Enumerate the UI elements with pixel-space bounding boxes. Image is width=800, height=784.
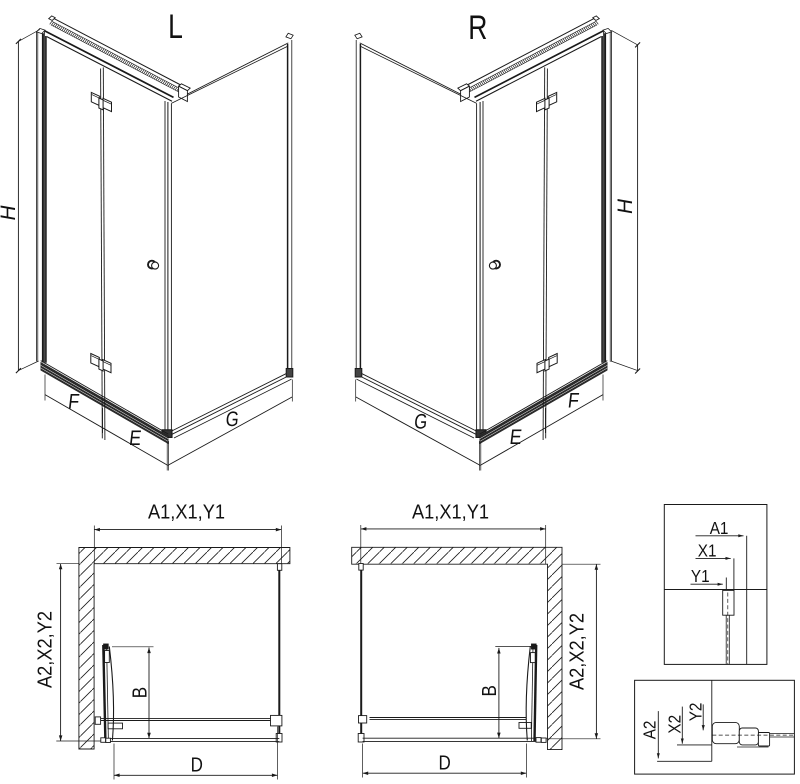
svg-text:D: D [439, 751, 451, 774]
svg-text:A2,X2,Y2: A2,X2,Y2 [35, 611, 57, 688]
svg-text:A2: A2 [640, 721, 660, 740]
svg-text:X1: X1 [698, 540, 717, 560]
svg-text:G: G [413, 411, 429, 434]
svg-text:L: L [168, 8, 183, 46]
svg-text:D: D [191, 753, 203, 776]
svg-text:B: B [128, 687, 151, 698]
svg-text:R: R [468, 9, 487, 47]
svg-text:B: B [478, 685, 501, 696]
svg-text:Y1: Y1 [691, 566, 710, 586]
svg-text:A1,X1,Y1: A1,X1,Y1 [412, 501, 489, 523]
svg-text:A1,X1,Y1: A1,X1,Y1 [148, 501, 225, 523]
svg-text:G: G [224, 408, 240, 431]
svg-text:A2,X2,Y2: A2,X2,Y2 [567, 613, 589, 690]
svg-text:X2: X2 [664, 715, 684, 734]
svg-text:A1: A1 [710, 518, 729, 538]
